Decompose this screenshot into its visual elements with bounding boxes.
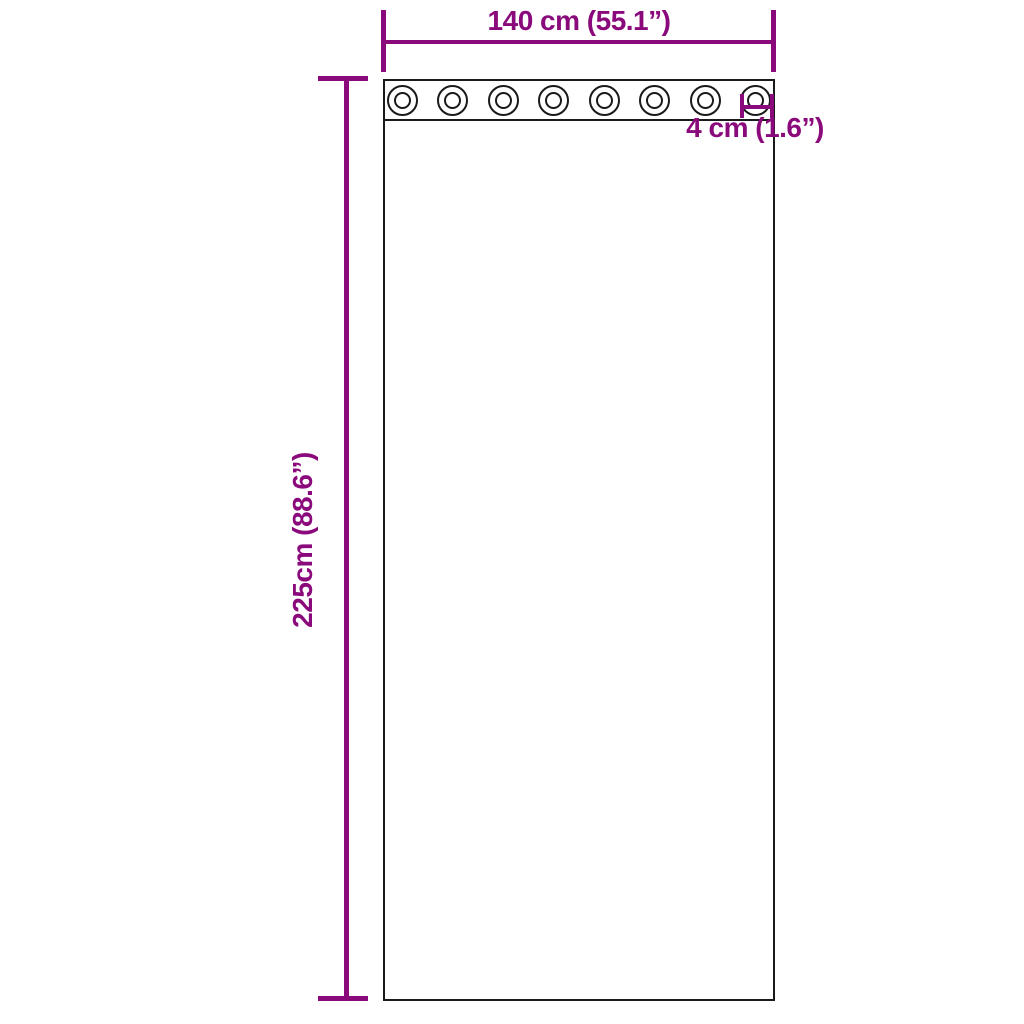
grommet-dimension-line	[740, 105, 774, 109]
width-dimension-label: 140 cm (55.1”)	[383, 5, 775, 37]
grommet-icon	[690, 85, 721, 116]
height-dimension-tick-top	[318, 76, 368, 81]
grommet-icon	[589, 85, 620, 116]
grommet-icon	[538, 85, 569, 116]
grommet-icon	[488, 85, 519, 116]
grommet-hole-icon	[697, 92, 714, 109]
grommet-icon	[437, 85, 468, 116]
grommet-dimension-label: 4 cm (1.6”)	[637, 113, 873, 143]
curtain-outline	[383, 79, 775, 1001]
dimension-diagram: 140 cm (55.1”) 225cm (88.6”) 4 cm (1.6”)	[0, 0, 1024, 1024]
height-dimension-label: 225cm (88.6”)	[286, 390, 320, 690]
grommet-hole-icon	[444, 92, 461, 109]
width-dimension-line	[383, 40, 775, 44]
height-dimension-line	[344, 77, 349, 1001]
grommet-hole-icon	[495, 92, 512, 109]
grommet-hole-icon	[545, 92, 562, 109]
grommet-icon	[740, 85, 771, 116]
grommet-icon	[639, 85, 670, 116]
grommet-icon	[387, 85, 418, 116]
grommet-hole-icon	[646, 92, 663, 109]
grommet-hole-icon	[596, 92, 613, 109]
grommet-hole-icon	[394, 92, 411, 109]
height-dimension-tick-bottom	[318, 996, 368, 1001]
